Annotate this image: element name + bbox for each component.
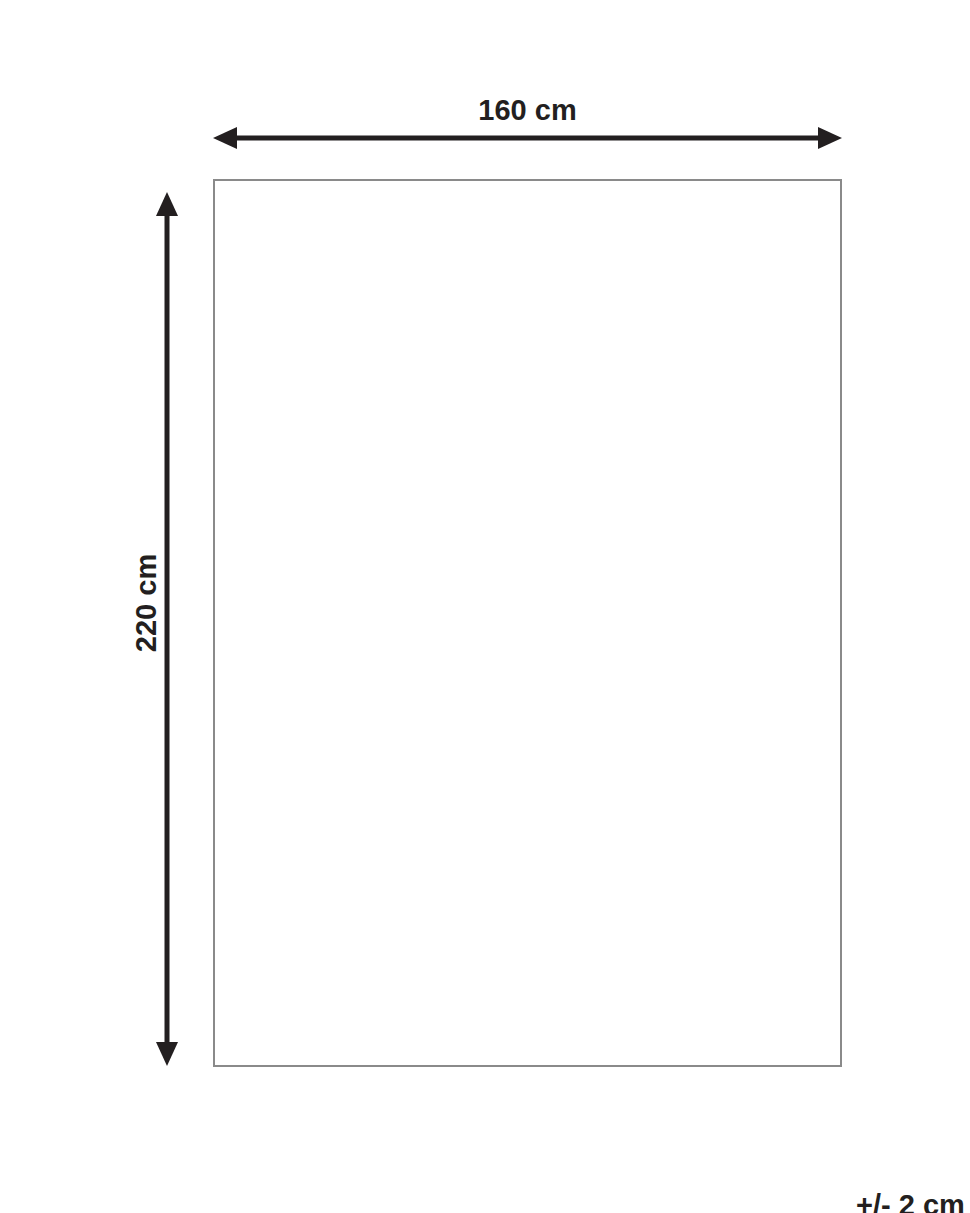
product-outline-rectangle: [213, 179, 842, 1067]
height-dimension-label: 220 cm: [130, 554, 162, 652]
width-arrow-icon: [213, 127, 842, 149]
width-dimension-label: 160 cm: [213, 94, 842, 126]
tolerance-label: +/- 2 cm: [856, 1189, 965, 1213]
dimension-diagram: 160 cm 220 cm +/- 2 cm: [0, 0, 970, 1213]
